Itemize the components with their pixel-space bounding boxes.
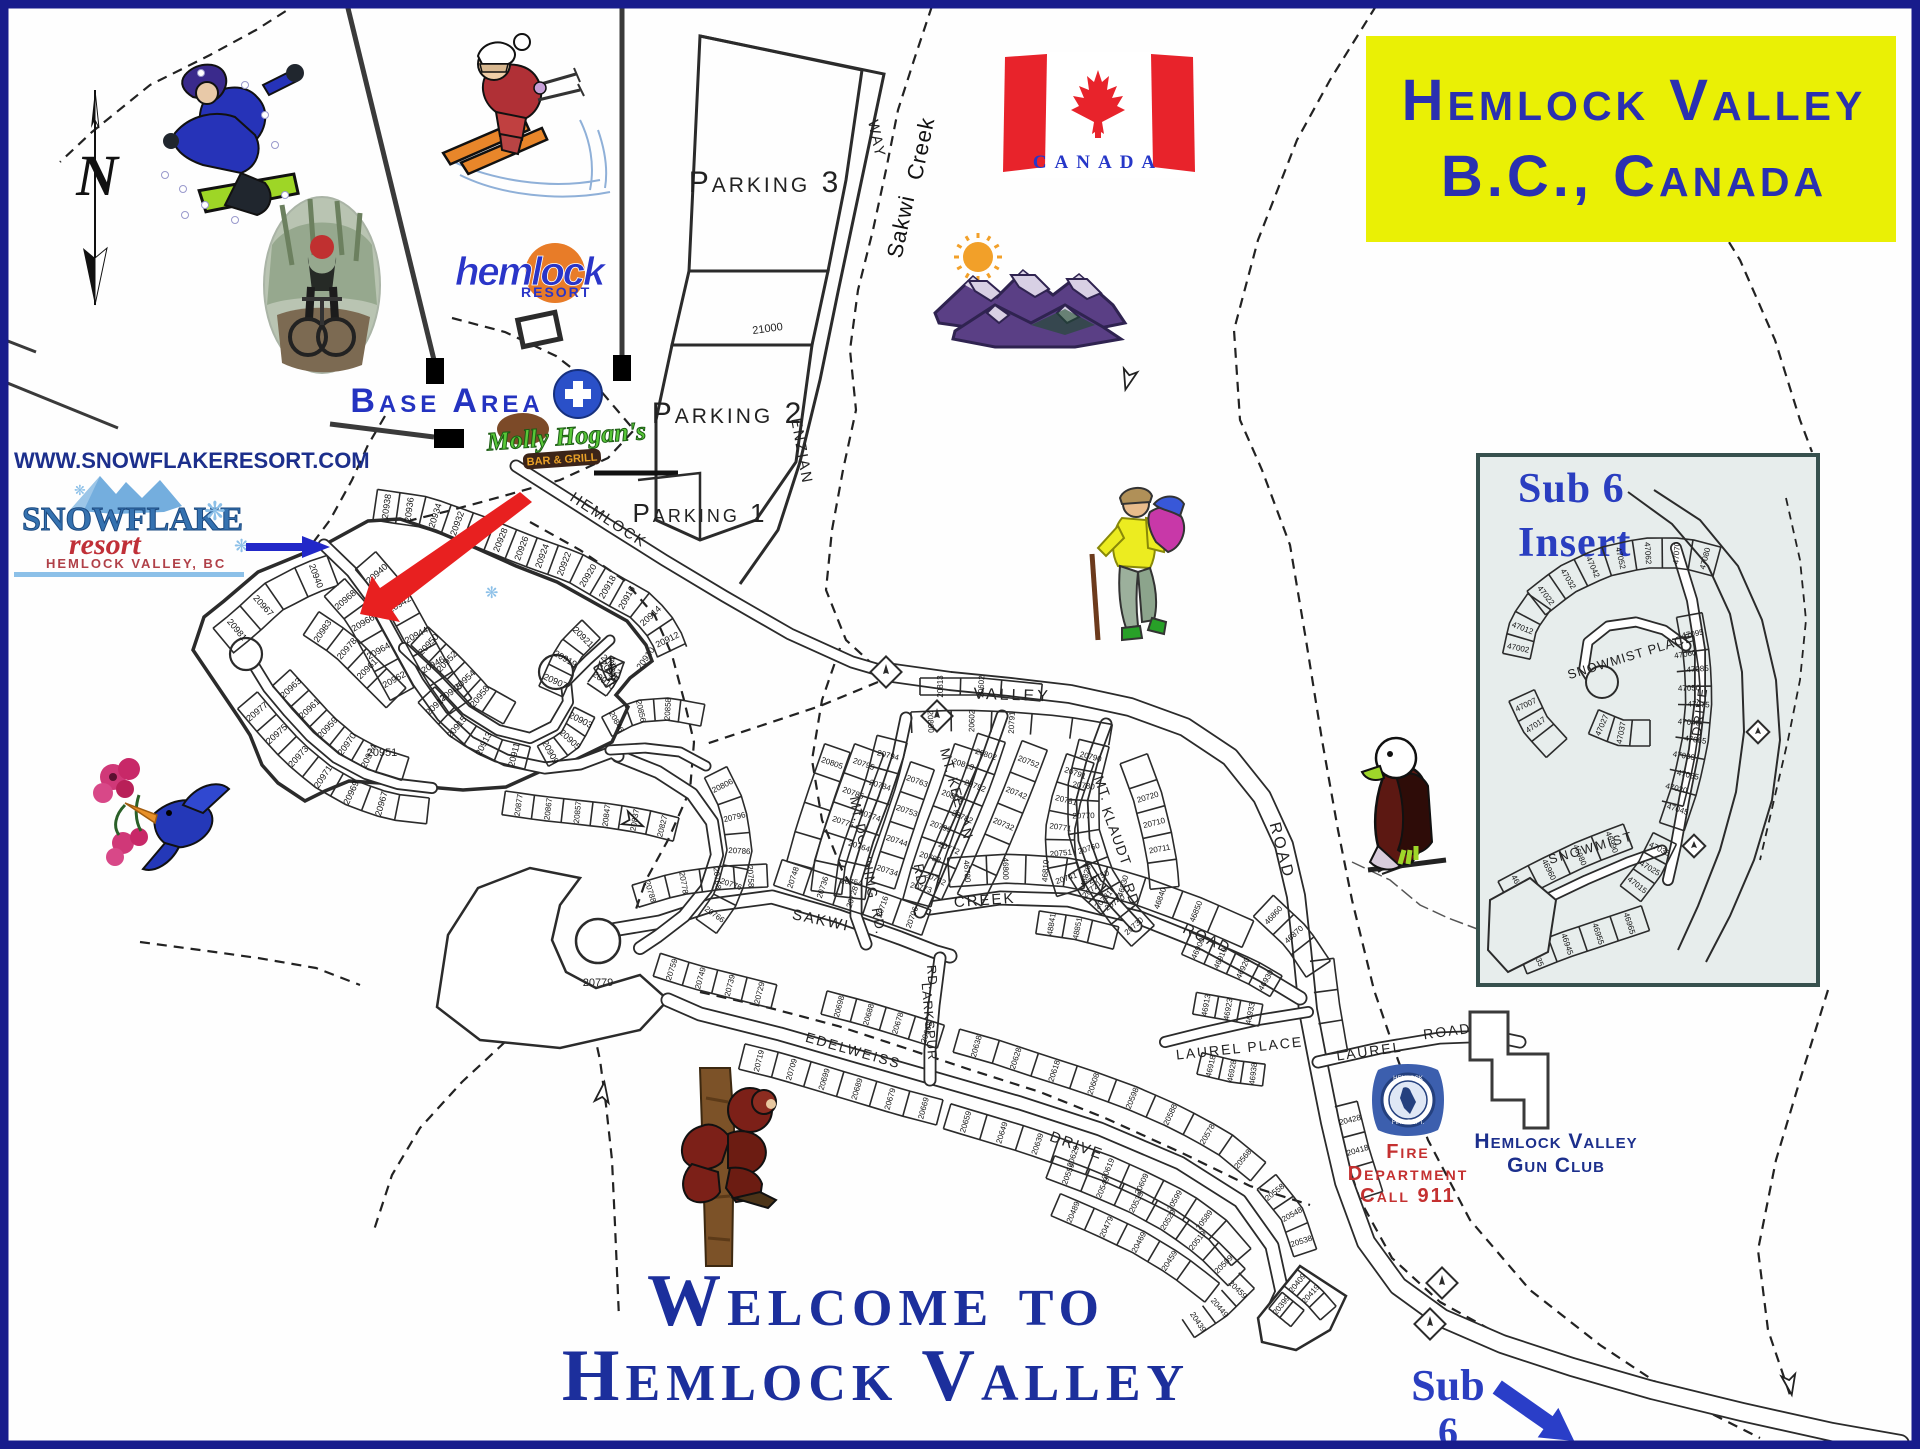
svg-text:Department: Department [1348,1163,1469,1185]
svg-text:20800: 20800 [926,710,936,733]
svg-text:20779: 20779 [583,977,614,989]
svg-text:46800: 46800 [1001,858,1010,881]
svg-text:Parking 2: Parking 2 [652,397,805,430]
svg-text:Hemlock Valley: Hemlock Valley [562,1335,1190,1417]
svg-text:❋: ❋ [485,585,498,602]
svg-text:Hemlock Valley: Hemlock Valley [1402,68,1867,133]
svg-text:Call 911: Call 911 [1360,1185,1455,1207]
svg-text:HEMLOCK VALLEY, BC: HEMLOCK VALLEY, BC [46,556,226,571]
svg-text:FIRE DEPT.: FIRE DEPT. [1392,1120,1425,1126]
svg-text:47062: 47062 [1643,542,1654,565]
svg-text:Welcome to: Welcome to [647,1260,1105,1342]
svg-text:20602: 20602 [976,675,986,698]
svg-text:20791: 20791 [1007,711,1017,734]
svg-text:20786: 20786 [728,846,751,856]
svg-text:47070: 47070 [1671,541,1682,564]
svg-text:RD.: RD. [924,964,941,991]
svg-text:WWW.SNOWFLAKERESORT.COM: WWW.SNOWFLAKERESORT.COM [14,448,370,473]
svg-text:N: N [75,143,120,208]
svg-text:RESORT: RESORT [521,284,591,300]
svg-text:Parking 3: Parking 3 [689,166,842,199]
svg-text:20951: 20951 [367,747,398,759]
svg-text:Sub 6: Sub 6 [1518,466,1625,512]
svg-text:47085: 47085 [1686,664,1709,675]
svg-text:20770: 20770 [1072,811,1095,820]
svg-text:❋: ❋ [74,482,86,498]
svg-text:46810: 46810 [1040,859,1051,882]
svg-text:HEMLOCK: HEMLOCK [1393,1076,1423,1082]
svg-text:❋: ❋ [204,496,226,526]
svg-text:20602: 20602 [967,709,976,732]
svg-text:B.C., Canada: B.C., Canada [1441,144,1827,209]
svg-text:Sub: Sub [1411,1361,1484,1410]
svg-text:46780: 46780 [962,860,973,883]
svg-text:Fire: Fire [1386,1141,1430,1163]
svg-text:20858: 20858 [663,697,673,720]
svg-text:Gun Club: Gun Club [1507,1154,1605,1177]
svg-text:Hemlock Valley: Hemlock Valley [1474,1130,1637,1153]
svg-text:20813: 20813 [936,675,945,698]
svg-text:CANADA: CANADA [1033,152,1163,173]
svg-text:20758: 20758 [745,865,755,888]
